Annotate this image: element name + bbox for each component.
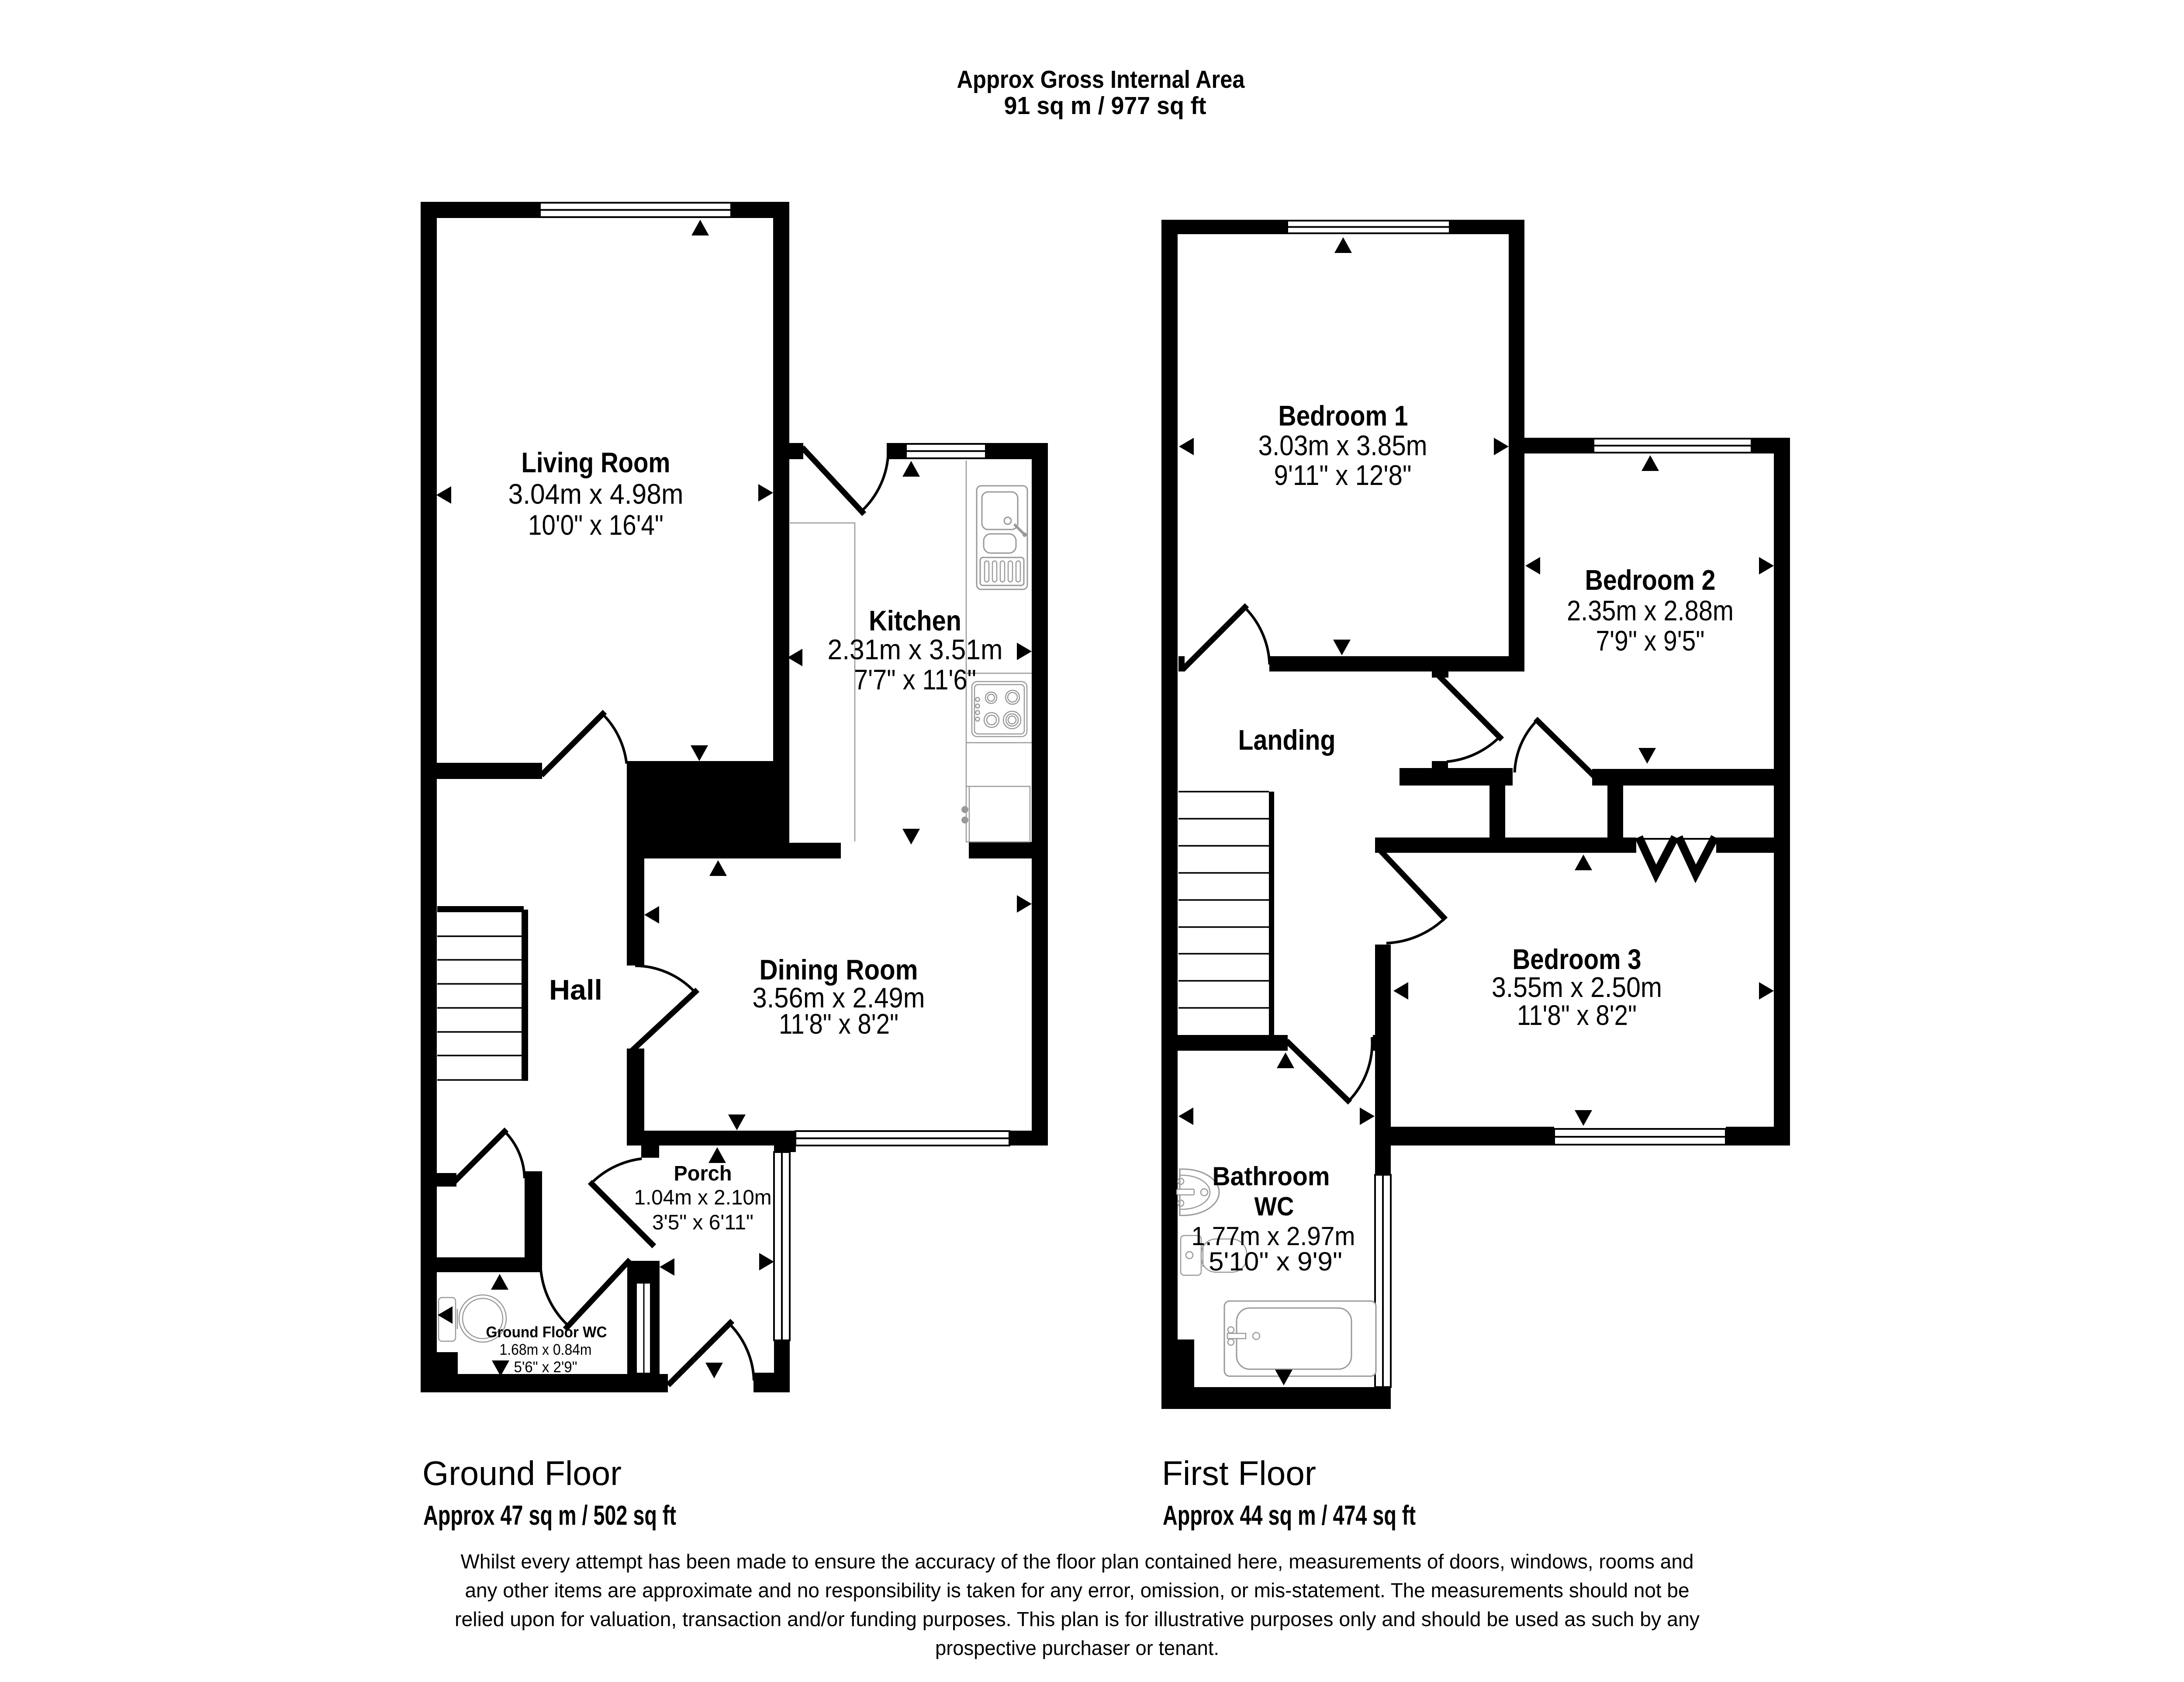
svg-text:prospective purchaser or tenan: prospective purchaser or tenant. [935, 1637, 1219, 1659]
svg-text:Approx 47 sq m / 502 sq ft: Approx 47 sq m / 502 sq ft [423, 1500, 676, 1531]
svg-text:1.04m x 2.10m: 1.04m x 2.10m [634, 1186, 772, 1209]
svg-text:WC: WC [1254, 1192, 1294, 1221]
svg-text:11'8" x 8'2": 11'8" x 8'2" [779, 1008, 898, 1040]
svg-text:2.31m x 3.51m: 2.31m x 3.51m [828, 633, 1003, 665]
svg-text:1.77m x 2.97m: 1.77m x 2.97m [1192, 1222, 1355, 1251]
svg-text:2.35m x 2.88m: 2.35m x 2.88m [1567, 595, 1734, 626]
svg-text:5'6" x 2'9": 5'6" x 2'9" [514, 1359, 577, 1376]
svg-text:Hall: Hall [549, 974, 602, 1006]
svg-text:Kitchen: Kitchen [869, 605, 961, 637]
svg-text:Bedroom 2: Bedroom 2 [1585, 564, 1716, 596]
svg-text:Ground Floor WC: Ground Floor WC [486, 1324, 607, 1341]
svg-text:First Floor: First Floor [1162, 1454, 1316, 1492]
svg-text:Living Room: Living Room [522, 446, 670, 478]
svg-text:Bedroom 3: Bedroom 3 [1513, 943, 1641, 975]
svg-text:5'10" x 9'9": 5'10" x 9'9" [1209, 1247, 1342, 1276]
svg-text:Approx Gross Internal Area: Approx Gross Internal Area [957, 66, 1245, 93]
svg-text:7'7" x 11'6": 7'7" x 11'6" [854, 664, 976, 696]
svg-text:Whilst every attempt has been: Whilst every attempt has been made to en… [461, 1550, 1694, 1573]
svg-text:Landing: Landing [1238, 724, 1336, 756]
svg-text:11'8" x 8'2": 11'8" x 8'2" [1517, 999, 1637, 1031]
svg-text:Ground Floor: Ground Floor [422, 1454, 622, 1492]
svg-text:10'0" x 16'4": 10'0" x 16'4" [528, 509, 663, 541]
svg-text:Dining Room: Dining Room [760, 954, 918, 986]
svg-text:3.03m x 3.85m: 3.03m x 3.85m [1258, 429, 1427, 461]
svg-text:9'11" x 12'8": 9'11" x 12'8" [1274, 459, 1412, 491]
svg-text:Approx 44 sq m / 474 sq ft: Approx 44 sq m / 474 sq ft [1163, 1500, 1416, 1531]
svg-text:3.04m x 4.98m: 3.04m x 4.98m [508, 478, 684, 510]
svg-text:91 sq m / 977 sq ft: 91 sq m / 977 sq ft [1004, 92, 1206, 120]
svg-text:1.68m x 0.84m: 1.68m x 0.84m [500, 1341, 592, 1358]
svg-text:Porch: Porch [674, 1162, 732, 1185]
svg-text:Bedroom 1: Bedroom 1 [1279, 400, 1408, 432]
svg-text:relied upon for valuation, tra: relied upon for valuation, transaction a… [455, 1608, 1700, 1630]
svg-text:7'9" x 9'5": 7'9" x 9'5" [1596, 625, 1705, 657]
svg-text:any other items are approximat: any other items are approximate and no r… [465, 1579, 1690, 1602]
svg-text:3'5" x 6'11": 3'5" x 6'11" [652, 1211, 753, 1234]
svg-text:Bathroom: Bathroom [1213, 1162, 1330, 1191]
svg-text:3.55m x 2.50m: 3.55m x 2.50m [1492, 971, 1662, 1003]
